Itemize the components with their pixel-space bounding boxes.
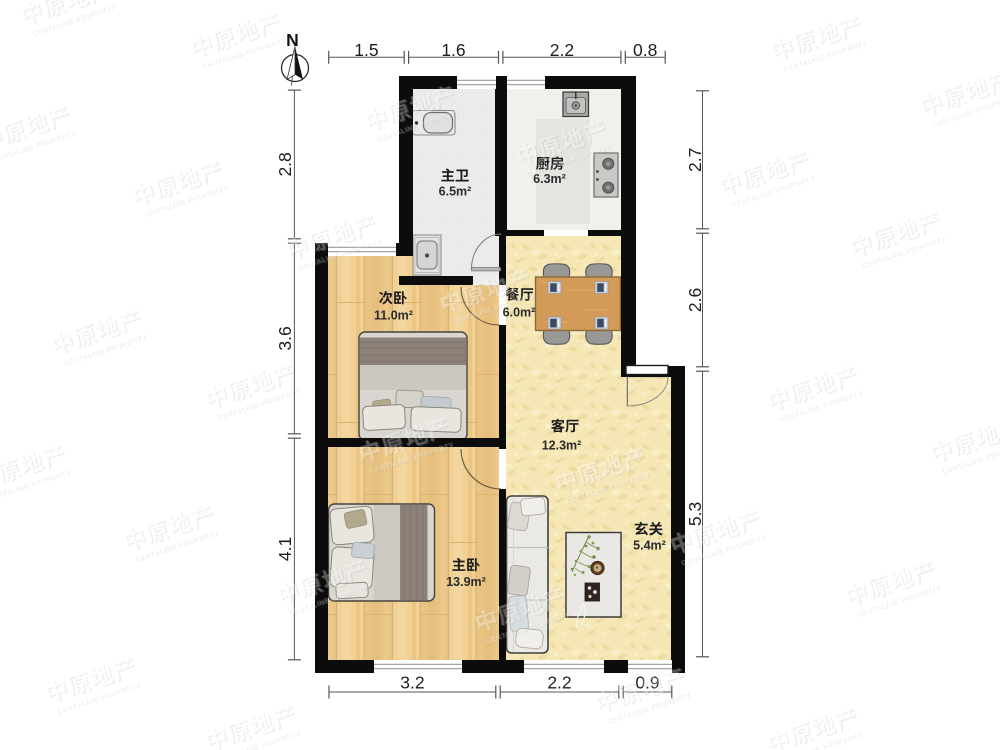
svg-text:3.6: 3.6 bbox=[275, 326, 295, 350]
svg-text:1.6: 1.6 bbox=[441, 40, 465, 60]
svg-text:2.6: 2.6 bbox=[685, 288, 705, 312]
svg-text:3.2: 3.2 bbox=[400, 673, 424, 693]
svg-text:5.4m²: 5.4m² bbox=[633, 539, 666, 553]
svg-text:0.8: 0.8 bbox=[633, 40, 657, 60]
svg-text:13.9m²: 13.9m² bbox=[446, 575, 486, 589]
svg-text:2.2: 2.2 bbox=[550, 40, 574, 60]
svg-text:2.8: 2.8 bbox=[275, 152, 295, 176]
svg-text:1.5: 1.5 bbox=[354, 40, 378, 60]
svg-text:2.7: 2.7 bbox=[685, 148, 705, 172]
svg-text:2.2: 2.2 bbox=[547, 673, 571, 693]
svg-text:5.3: 5.3 bbox=[685, 502, 705, 526]
svg-text:N: N bbox=[286, 30, 299, 50]
svg-text:6.5m²: 6.5m² bbox=[439, 185, 472, 199]
svg-text:11.0m²: 11.0m² bbox=[374, 309, 413, 323]
svg-text:12.3m²: 12.3m² bbox=[542, 439, 582, 453]
svg-text:4.1: 4.1 bbox=[275, 537, 295, 561]
